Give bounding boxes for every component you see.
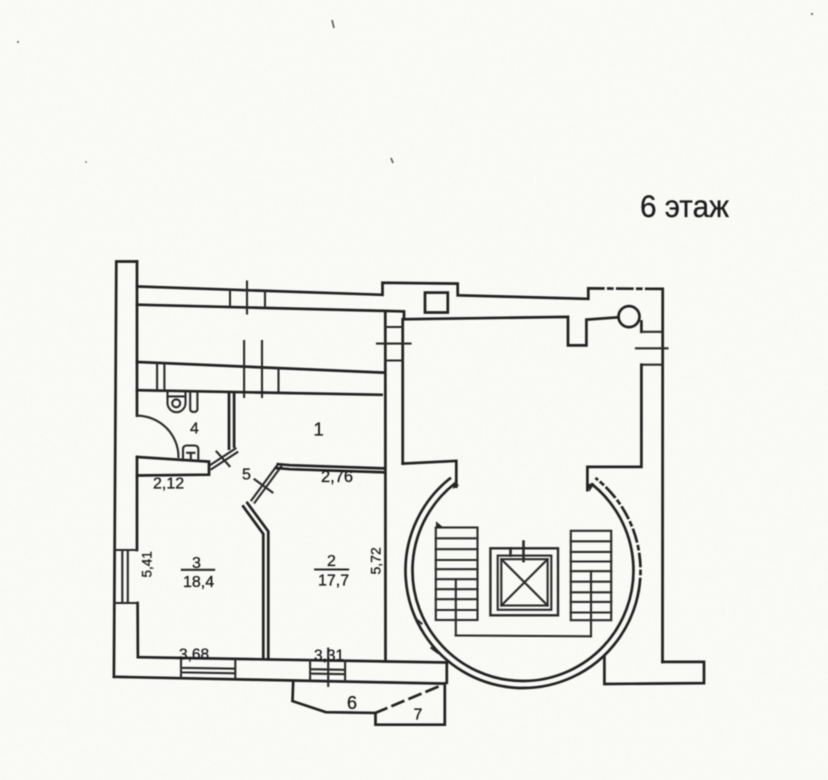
svg-text:5,41: 5,41 [140, 551, 155, 577]
svg-text:6 этаж: 6 этаж [640, 188, 729, 224]
svg-text:1: 1 [314, 419, 324, 440]
svg-text:2,12: 2,12 [153, 475, 184, 492]
svg-text:3,31: 3,31 [314, 648, 344, 665]
svg-text:6: 6 [347, 693, 357, 713]
svg-text:5: 5 [242, 466, 251, 483]
svg-text:7: 7 [414, 707, 423, 724]
svg-text:17,7: 17,7 [318, 573, 349, 590]
svg-text:4: 4 [190, 421, 199, 438]
svg-text:5,72: 5,72 [368, 547, 384, 574]
svg-text:3,68: 3,68 [179, 646, 209, 663]
svg-text:2,76: 2,76 [321, 468, 353, 486]
svg-text:2: 2 [327, 553, 336, 570]
svg-text:18,4: 18,4 [183, 574, 214, 591]
